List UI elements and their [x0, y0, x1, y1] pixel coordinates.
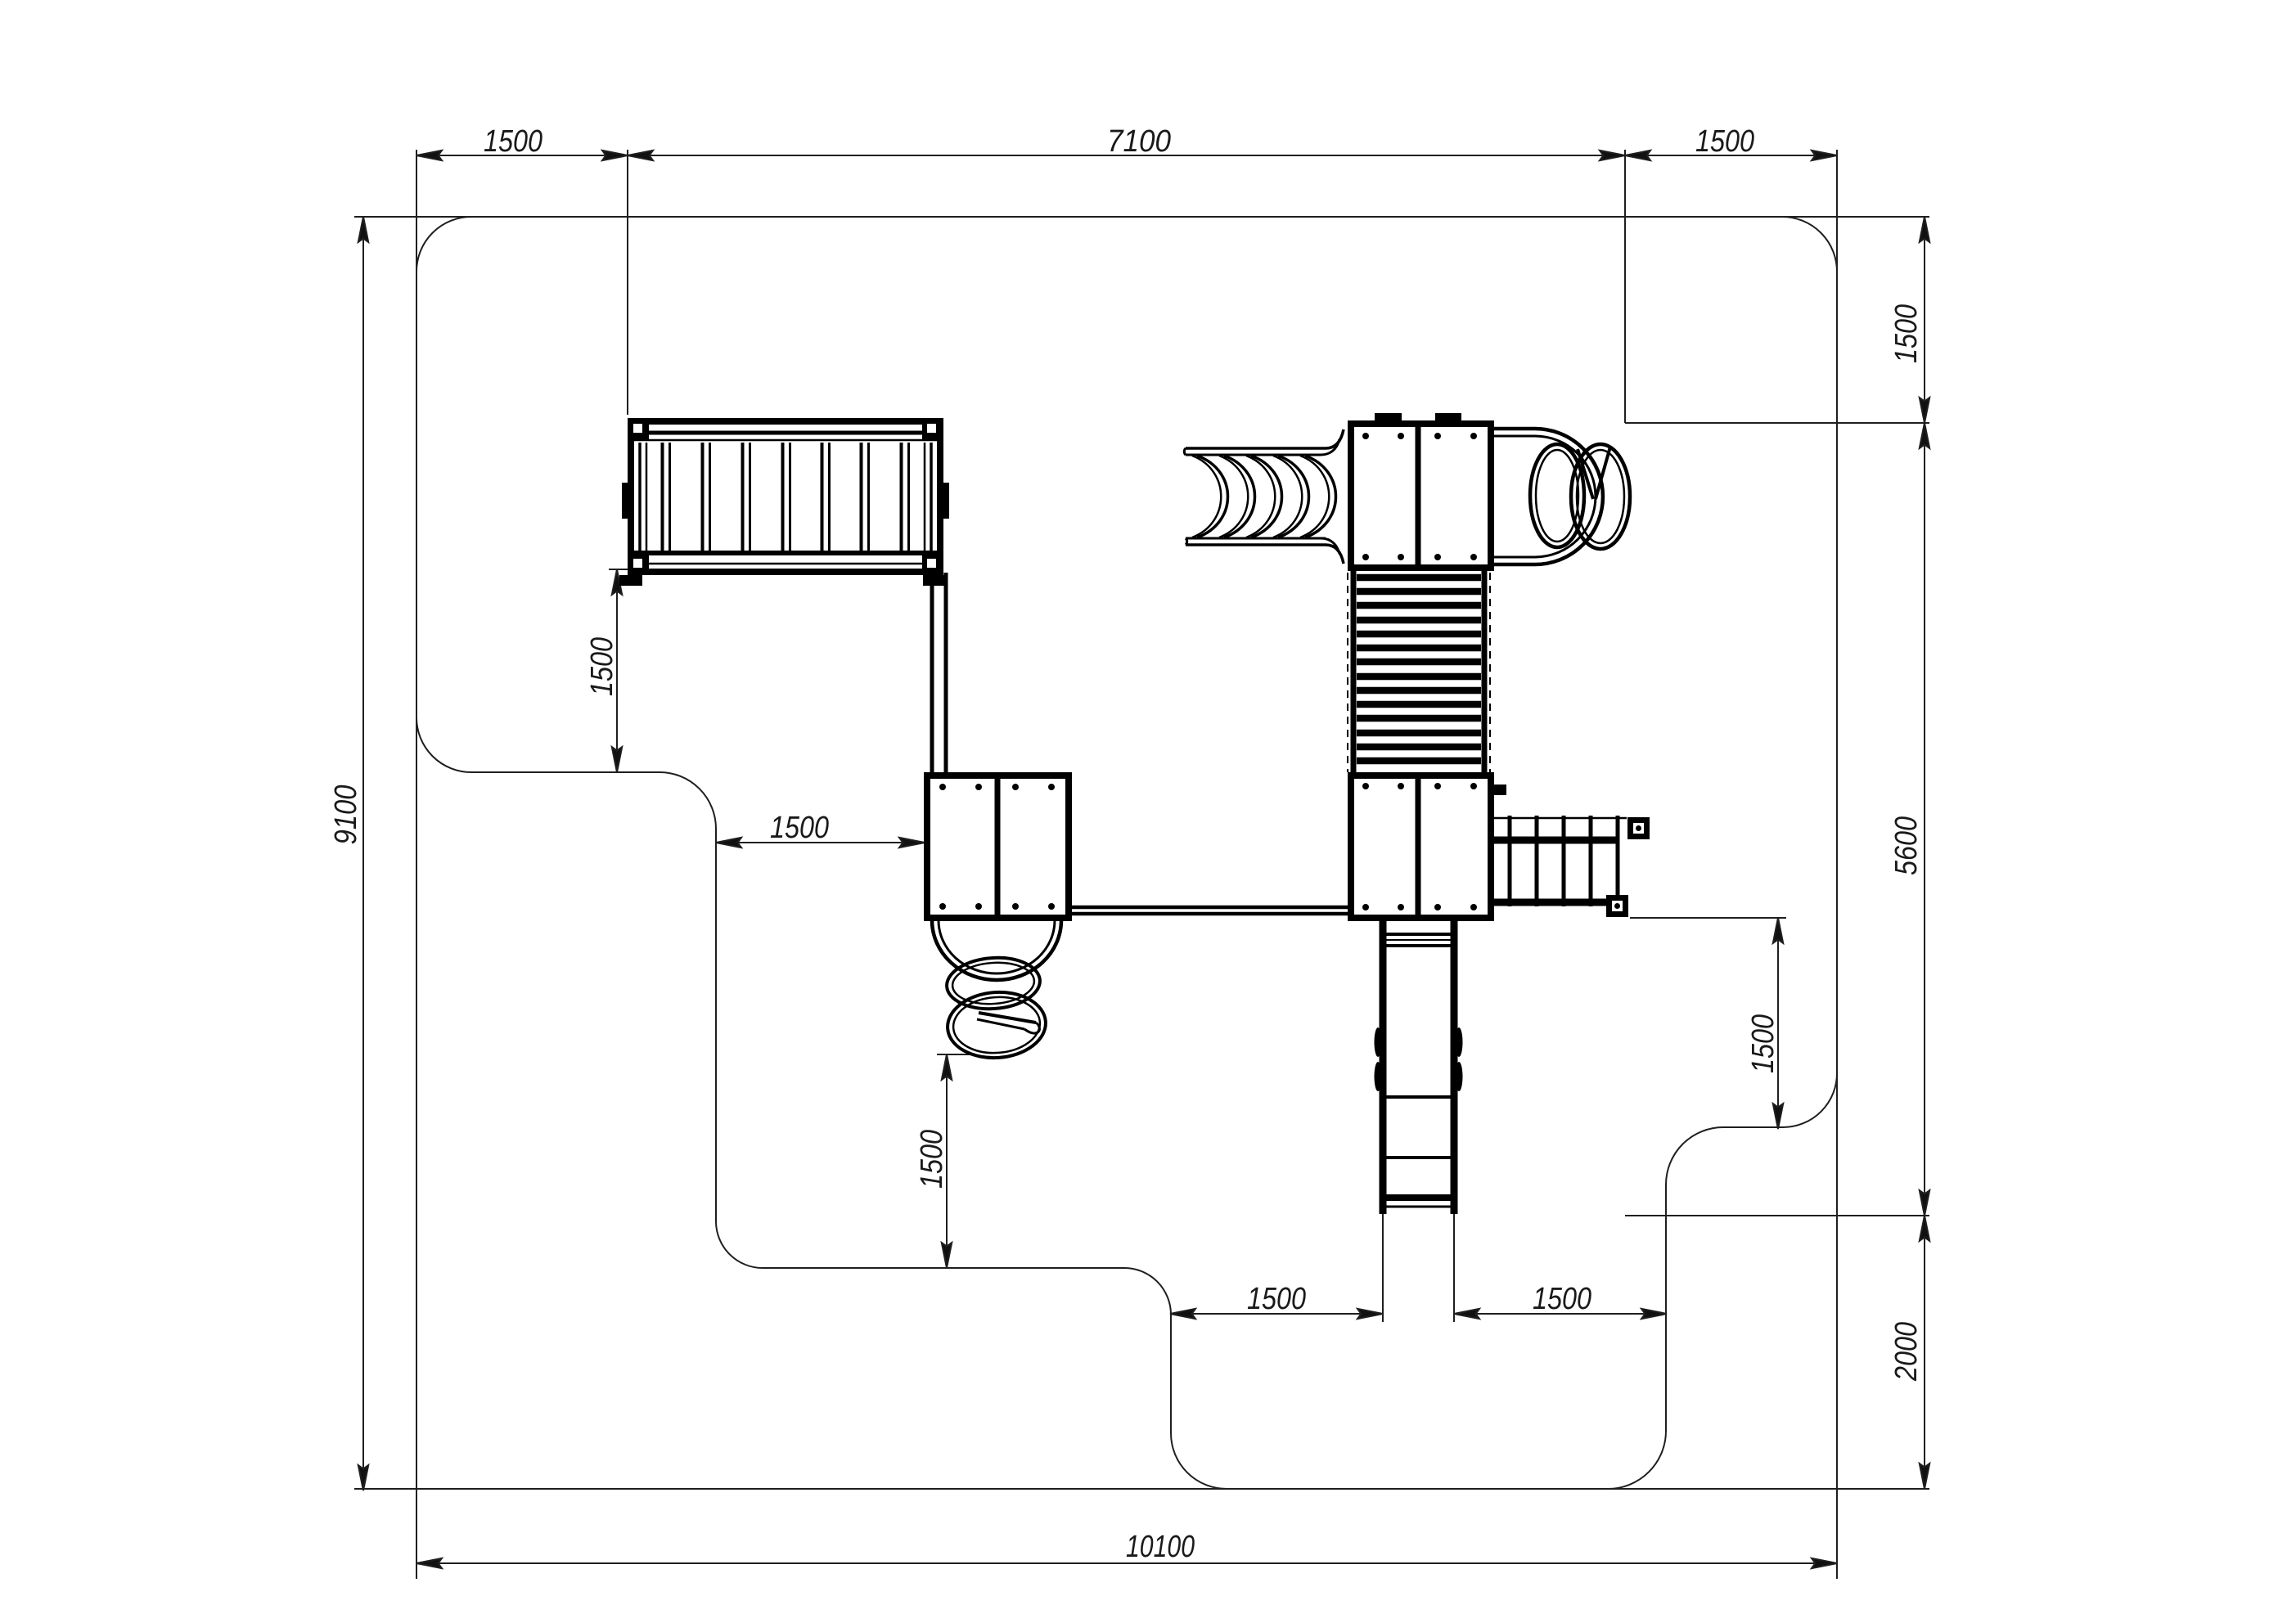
- svg-text:7100: 7100: [1107, 124, 1171, 159]
- svg-text:1500: 1500: [1247, 1282, 1306, 1316]
- svg-text:1500: 1500: [1746, 1014, 1781, 1073]
- svg-text:1500: 1500: [1695, 124, 1754, 159]
- svg-text:1500: 1500: [1889, 304, 1924, 363]
- svg-text:1500: 1500: [915, 1130, 949, 1189]
- svg-text:2000: 2000: [1889, 1322, 1924, 1382]
- svg-text:5600: 5600: [1889, 816, 1924, 875]
- svg-text:9100: 9100: [329, 785, 363, 845]
- svg-text:10100: 10100: [1126, 1530, 1195, 1564]
- svg-text:1500: 1500: [484, 124, 542, 159]
- svg-text:1500: 1500: [1533, 1282, 1591, 1316]
- svg-text:1500: 1500: [585, 637, 619, 696]
- svg-text:1500: 1500: [770, 811, 829, 845]
